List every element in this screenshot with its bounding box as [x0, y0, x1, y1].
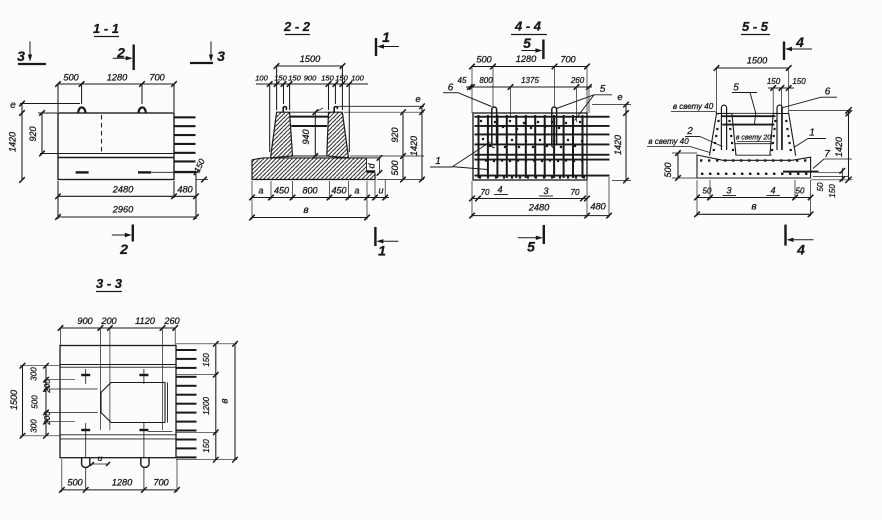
svg-text:1280: 1280: [107, 73, 128, 83]
svg-text:150: 150: [202, 439, 211, 453]
svg-text:5: 5: [733, 83, 739, 94]
svg-text:1: 1: [378, 243, 386, 259]
svg-text:в свету 40: в свету 40: [673, 102, 714, 111]
svg-text:5: 5: [523, 35, 531, 51]
svg-text:500: 500: [67, 478, 83, 488]
svg-text:3: 3: [543, 186, 548, 196]
svg-text:в: в: [751, 202, 756, 213]
svg-text:45: 45: [458, 76, 467, 85]
svg-text:2480: 2480: [112, 185, 134, 195]
svg-text:a: a: [354, 186, 359, 196]
svg-text:70: 70: [481, 188, 490, 197]
svg-text:800: 800: [302, 186, 317, 196]
svg-text:450: 450: [274, 186, 289, 196]
svg-text:в свету 20: в свету 20: [736, 135, 771, 142]
svg-text:1420: 1420: [613, 135, 623, 155]
svg-text:2480: 2480: [528, 203, 550, 213]
svg-text:3: 3: [726, 186, 731, 196]
svg-text:1280: 1280: [516, 54, 537, 64]
svg-text:5: 5: [527, 239, 535, 255]
svg-text:1500: 1500: [300, 54, 321, 64]
svg-text:500: 500: [476, 55, 492, 65]
svg-text:u: u: [378, 186, 383, 196]
svg-text:1: 1: [382, 29, 390, 45]
svg-text:e: e: [415, 94, 420, 105]
svg-text:7: 7: [824, 149, 830, 160]
svg-text:в: в: [220, 398, 231, 403]
svg-text:920: 920: [28, 126, 38, 141]
svg-text:150: 150: [321, 74, 334, 83]
svg-text:a: a: [258, 186, 263, 196]
svg-text:260: 260: [570, 76, 585, 85]
svg-text:450: 450: [331, 186, 346, 196]
svg-text:e: e: [617, 92, 622, 103]
svg-text:500: 500: [63, 73, 79, 83]
svg-text:920: 920: [390, 127, 400, 142]
svg-text:70: 70: [571, 188, 580, 197]
svg-text:700: 700: [560, 55, 576, 65]
svg-text:1420: 1420: [834, 137, 844, 157]
svg-text:в: в: [303, 205, 308, 216]
svg-text:1120: 1120: [135, 316, 156, 326]
svg-text:100: 100: [255, 74, 268, 83]
svg-text:3 - 3: 3 - 3: [96, 276, 123, 291]
svg-text:2: 2: [686, 126, 693, 137]
svg-text:480: 480: [590, 202, 606, 212]
svg-text:1280: 1280: [112, 478, 133, 488]
svg-text:150: 150: [828, 184, 837, 198]
svg-text:300: 300: [30, 419, 39, 433]
svg-text:6: 6: [448, 83, 454, 94]
svg-text:150: 150: [288, 74, 301, 83]
svg-text:700: 700: [149, 73, 165, 83]
svg-text:500: 500: [31, 395, 40, 409]
svg-text:4: 4: [795, 34, 804, 50]
svg-text:e: e: [10, 100, 16, 111]
svg-text:1375: 1375: [521, 76, 539, 85]
svg-text:480: 480: [177, 185, 193, 195]
svg-text:900: 900: [304, 74, 317, 83]
svg-text:200: 200: [43, 411, 52, 426]
svg-text:6: 6: [825, 87, 831, 98]
svg-text:1200: 1200: [202, 397, 211, 415]
svg-text:1 - 1: 1 - 1: [93, 21, 119, 36]
svg-text:50: 50: [703, 187, 712, 196]
svg-text:1500: 1500: [747, 56, 768, 66]
svg-text:5 - 5: 5 - 5: [742, 19, 769, 34]
svg-text:700: 700: [153, 478, 169, 488]
svg-text:2: 2: [119, 241, 128, 257]
svg-text:2960: 2960: [112, 205, 134, 215]
svg-text:4: 4: [796, 242, 805, 258]
svg-text:900: 900: [77, 316, 93, 326]
svg-text:800: 800: [479, 76, 493, 85]
svg-text:u: u: [98, 453, 103, 463]
svg-text:1420: 1420: [8, 132, 18, 152]
svg-text:5: 5: [600, 84, 606, 95]
svg-text:200: 200: [43, 379, 52, 394]
svg-text:1: 1: [809, 128, 815, 139]
svg-text:3: 3: [17, 48, 25, 64]
svg-text:150: 150: [202, 353, 211, 367]
svg-text:200: 200: [100, 316, 117, 326]
svg-text:4 - 4: 4 - 4: [514, 19, 542, 34]
svg-text:150: 150: [767, 77, 781, 86]
svg-text:260: 260: [163, 316, 180, 326]
svg-text:1: 1: [435, 156, 441, 167]
svg-text:150: 150: [335, 74, 348, 83]
svg-text:150: 150: [792, 77, 806, 86]
svg-text:300: 300: [30, 367, 39, 381]
svg-text:4: 4: [770, 186, 775, 196]
svg-text:50: 50: [796, 187, 805, 196]
svg-text:940: 940: [301, 129, 311, 144]
svg-text:1420: 1420: [409, 136, 419, 156]
svg-text:500: 500: [663, 162, 673, 177]
svg-text:в свету 40: в свету 40: [648, 137, 689, 146]
svg-text:3: 3: [217, 48, 225, 64]
svg-text:50: 50: [816, 182, 825, 191]
svg-text:1500: 1500: [9, 390, 19, 410]
svg-text:4: 4: [497, 185, 502, 195]
svg-text:2 - 2: 2 - 2: [283, 19, 311, 34]
svg-text:100: 100: [351, 74, 364, 83]
svg-text:150: 150: [274, 74, 287, 83]
svg-text:500: 500: [390, 160, 400, 175]
